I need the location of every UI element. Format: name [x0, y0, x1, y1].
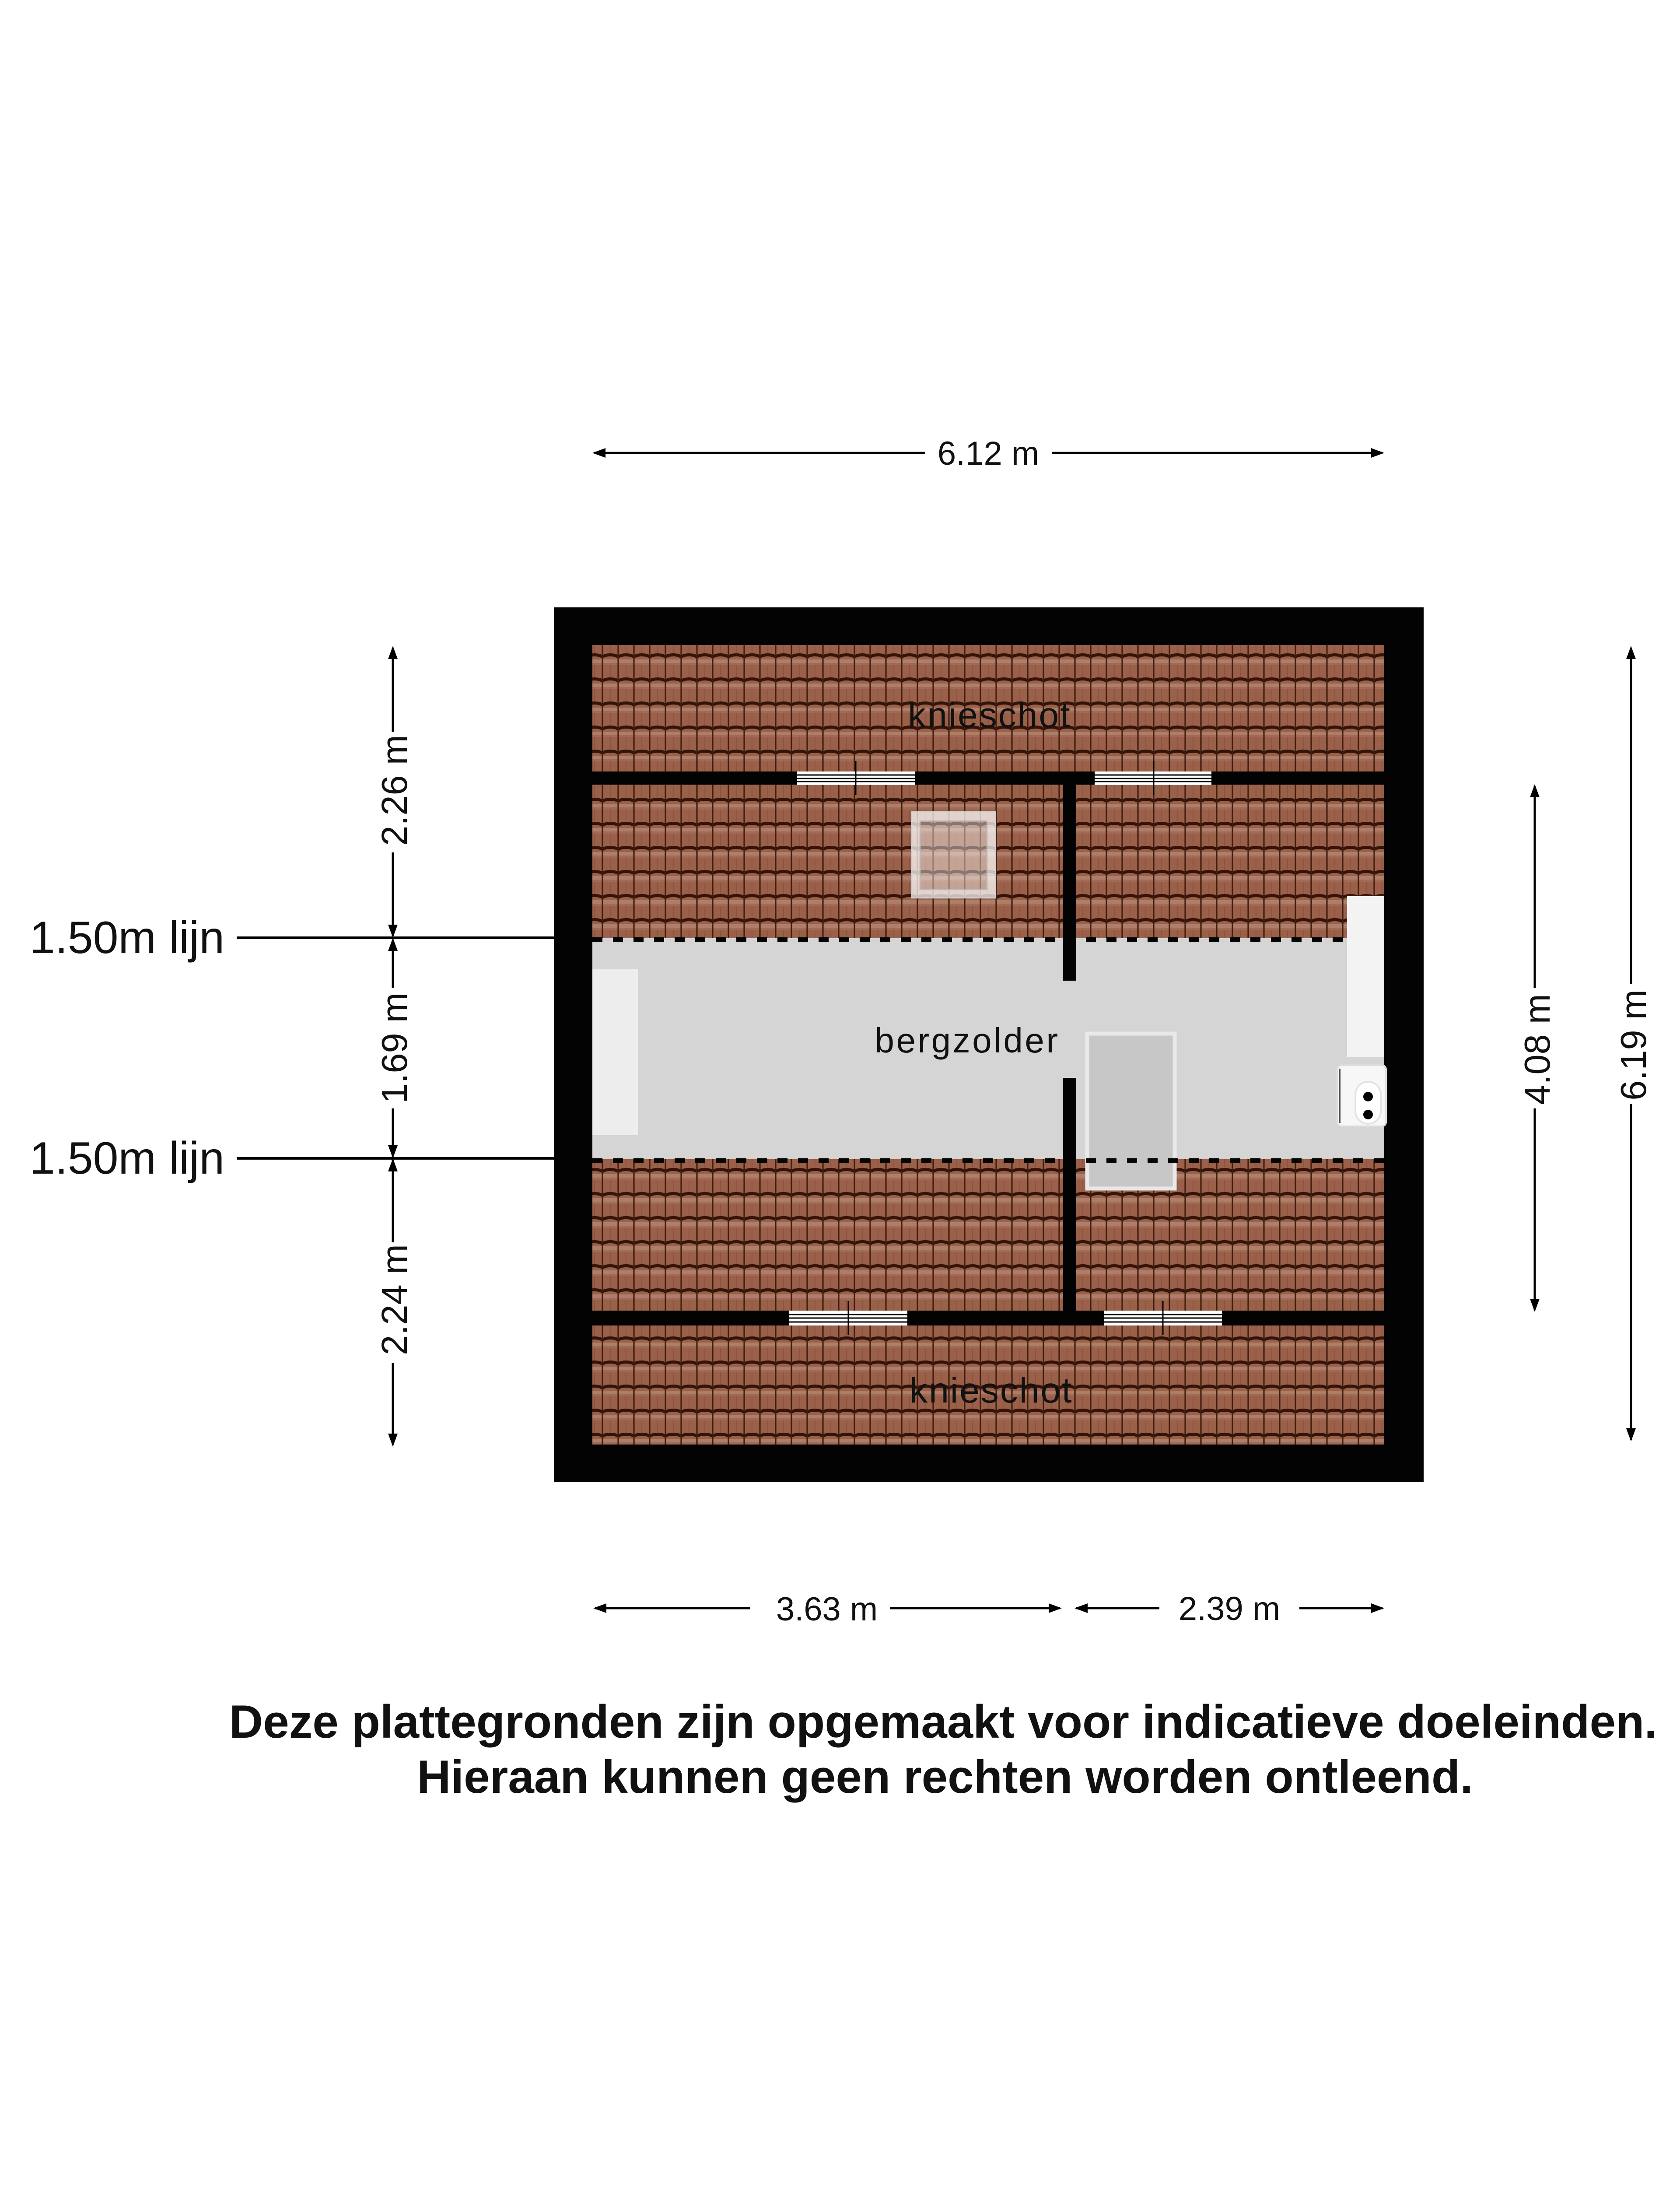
- svg-text:1.50m lijn: 1.50m lijn: [30, 912, 224, 963]
- svg-text:Hieraan kunnen geen rechten wo: Hieraan kunnen geen rechten worden ontle…: [417, 1750, 1473, 1803]
- svg-text:1.50m lijn: 1.50m lijn: [30, 1133, 224, 1184]
- svg-text:2.39 m: 2.39 m: [1179, 1590, 1280, 1627]
- svg-text:6.12 m: 6.12 m: [938, 435, 1039, 472]
- svg-text:bergzolder: bergzolder: [875, 1021, 1060, 1060]
- svg-text:knieschot: knieschot: [910, 1371, 1073, 1410]
- svg-text:2.24 m: 2.24 m: [374, 1244, 415, 1355]
- svg-text:6.19 m: 6.19 m: [1613, 989, 1654, 1101]
- svg-text:knieschot: knieschot: [908, 695, 1071, 735]
- svg-text:3.63 m: 3.63 m: [776, 1591, 878, 1628]
- svg-text:Deze plattegronden zijn opgema: Deze plattegronden zijn opgemaakt voor i…: [229, 1695, 1657, 1748]
- svg-text:1.69 m: 1.69 m: [374, 992, 415, 1104]
- svg-text:2.26 m: 2.26 m: [374, 735, 415, 846]
- svg-text:4.08 m: 4.08 m: [1517, 994, 1557, 1105]
